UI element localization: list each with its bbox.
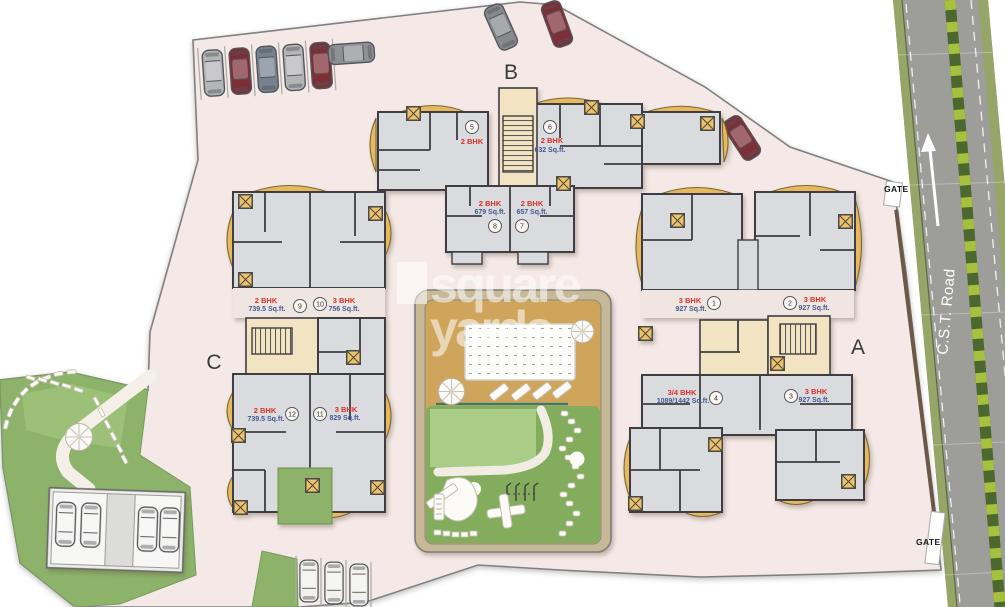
building-c-letter: C (206, 351, 221, 374)
svg-text:3 BHK: 3 BHK (805, 387, 828, 396)
svg-text:1089/1442 Sq.ft.: 1089/1442 Sq.ft. (657, 398, 710, 405)
lift-shaft-icon (306, 479, 320, 493)
lift-shaft-icon (234, 501, 248, 515)
unit-label-12: 2 BHK 739.5 Sq.ft. 12 (248, 406, 299, 423)
svg-text:2 BHK: 2 BHK (521, 199, 544, 208)
site-plan: C.S.T. Road GATE GATE (0, 0, 1005, 607)
lift-shaft-icon (839, 215, 853, 229)
lift-shaft-icon (771, 357, 785, 371)
lift-shaft-icon (239, 273, 253, 287)
parked-car (256, 46, 279, 93)
parked-car (80, 503, 101, 548)
building-a-letter: A (851, 336, 865, 359)
lift-shaft-icon (371, 481, 385, 495)
parked-car (283, 44, 306, 91)
parked-car (159, 508, 180, 553)
parked-car (300, 560, 318, 602)
parked-car (325, 562, 343, 604)
unit-label-10: 10 3 BHK 756 Sq.ft. (314, 296, 360, 313)
lawn-circle (570, 452, 585, 467)
parked-car (229, 47, 252, 94)
lift-shaft-icon (639, 327, 653, 341)
umbrella-icon (66, 424, 93, 451)
lift-shaft-icon (631, 115, 645, 129)
svg-text:2 BHK: 2 BHK (254, 406, 277, 415)
parked-car (350, 564, 368, 606)
lift-shaft-icon (842, 475, 856, 489)
unit-label-2: 2 3 BHK 927 Sq.ft. (784, 295, 830, 312)
svg-text:10: 10 (316, 302, 324, 309)
unit-label-11: 11 3 BHK 829 Sq.ft. (314, 405, 361, 422)
lift-shaft-icon (557, 177, 571, 191)
lift-shaft-icon (232, 429, 246, 443)
parked-car (328, 42, 375, 65)
svg-text:657 Sq.ft.: 657 Sq.ft. (516, 209, 547, 216)
lift-shaft-icon (701, 117, 715, 131)
svg-text:4: 4 (714, 396, 718, 403)
parked-car (202, 49, 225, 96)
building-c (227, 186, 391, 525)
svg-text:3: 3 (789, 394, 793, 401)
svg-text:9: 9 (298, 304, 302, 311)
svg-text:12: 12 (288, 412, 296, 419)
svg-text:632 Sq.ft.: 632 Sq.ft. (534, 147, 565, 154)
lift-shaft-icon (347, 351, 361, 365)
svg-text:927 Sq.ft.: 927 Sq.ft. (798, 305, 829, 312)
svg-text:8: 8 (493, 224, 497, 231)
svg-text:11: 11 (316, 412, 323, 419)
lift-shaft-icon (585, 101, 599, 115)
svg-text:1: 1 (712, 301, 716, 308)
parking-structure (47, 488, 186, 573)
lift-shaft-icon (407, 107, 421, 121)
svg-text:7: 7 (520, 224, 524, 231)
watermark-line2: yards (430, 301, 552, 357)
lift-shaft-icon (671, 214, 685, 228)
svg-text:927 Sq.ft.: 927 Sq.ft. (675, 306, 706, 313)
svg-text:2 BHK: 2 BHK (479, 199, 502, 208)
green-patch (278, 468, 332, 524)
svg-text:6: 6 (548, 125, 552, 132)
watermark-logo-block (397, 262, 427, 304)
svg-text:5: 5 (470, 125, 474, 132)
lift-shaft-icon (369, 207, 383, 221)
building-b-letter: B (504, 61, 518, 84)
svg-text:739.5 Sq.ft.: 739.5 Sq.ft. (249, 306, 286, 313)
svg-text:2 BHK: 2 BHK (461, 137, 484, 146)
svg-text:2: 2 (788, 301, 792, 308)
lift-shaft-icon (629, 497, 643, 511)
lawn-patch (430, 409, 536, 467)
svg-text:927 Sq.ft.: 927 Sq.ft. (798, 397, 829, 404)
umbrella-icon (571, 320, 594, 343)
lift-shaft-icon (709, 438, 723, 452)
svg-text:3 BHK: 3 BHK (804, 295, 827, 304)
svg-text:2 BHK: 2 BHK (255, 296, 278, 305)
svg-text:3/4 BHK: 3/4 BHK (668, 388, 697, 397)
svg-text:3 BHK: 3 BHK (335, 405, 358, 414)
svg-text:3 BHK: 3 BHK (333, 296, 356, 305)
svg-text:679 Sq.ft.: 679 Sq.ft. (474, 209, 505, 216)
svg-text:2 BHK: 2 BHK (541, 136, 564, 145)
svg-text:829 Sq.ft.: 829 Sq.ft. (329, 415, 360, 422)
gate-bottom-label: GATE (916, 537, 941, 547)
parked-car (137, 507, 158, 552)
svg-text:739.5 Sq.ft.: 739.5 Sq.ft. (248, 416, 285, 423)
parked-car (55, 502, 76, 547)
gate-top-label: GATE (884, 184, 909, 194)
svg-text:3 BHK: 3 BHK (679, 296, 702, 305)
gate-top: GATE (884, 181, 909, 207)
lift-shaft-icon (239, 195, 253, 209)
svg-text:756 Sq.ft.: 756 Sq.ft. (328, 306, 359, 313)
umbrella-icon (438, 378, 464, 404)
unit-label-3: 3 3 BHK 927 Sq.ft. (785, 387, 830, 404)
